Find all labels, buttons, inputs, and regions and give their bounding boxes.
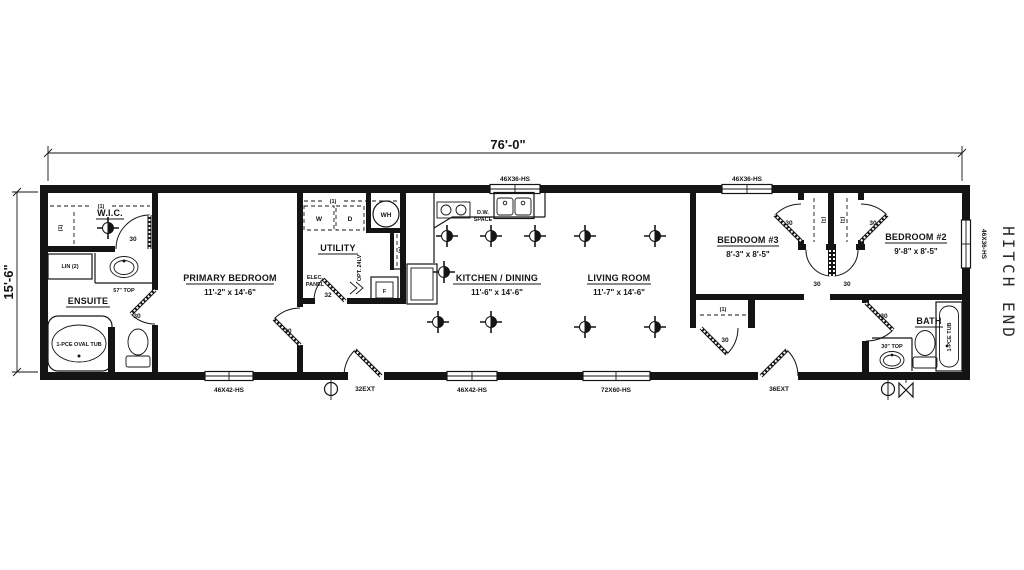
ceiling-light-icon — [574, 316, 596, 338]
shelf-mark: (1) — [720, 307, 727, 313]
primary-bedroom-size: 11'-2" x 14'-6" — [204, 288, 256, 297]
shelf-mark: (1) — [839, 217, 845, 224]
oval-tub-label: 1-PCE OVAL TUB — [56, 342, 101, 348]
living-room: LIVING ROOM 11'-7" x 14'-6" — [587, 273, 651, 297]
dimension-top: 76'-0" — [44, 137, 966, 181]
bedroom3: BEDROOM #3 8'-3" x 8'-5" — [717, 235, 779, 259]
bath-door: 30 — [866, 303, 893, 341]
dw-space-label-1: D.W. — [477, 210, 489, 216]
elec-panel-label-2: PANEL — [306, 282, 325, 288]
furnace-label: F — [383, 289, 387, 295]
ensuite-door: 30 — [131, 290, 155, 324]
hitch-end-label: HITCH END — [999, 226, 1018, 340]
window-bedroom2-right: 46X36-HS — [962, 220, 988, 268]
bedroom3-door: 30 — [775, 204, 801, 241]
svg-text:30: 30 — [284, 328, 292, 335]
window-bedroom3-top: 46X36-HS — [722, 176, 772, 194]
living-room-size: 11'-7" x 14'-6" — [593, 288, 645, 297]
primary-bedroom-door: 30 — [274, 308, 300, 345]
utility-label: UTILITY — [320, 243, 355, 253]
linen-label: LIN (2) — [61, 264, 78, 270]
kitchen-size: 11'-6" x 14'-6" — [471, 288, 523, 297]
shelf-mark: (1) — [820, 217, 826, 224]
bedroom2-label: BEDROOM #2 — [885, 232, 947, 242]
svg-text:30: 30 — [880, 313, 888, 320]
shelf-mark: (1) — [397, 247, 403, 254]
ceiling-light-icon — [644, 316, 666, 338]
wic-door: 30 — [116, 215, 150, 249]
washer-label: W — [316, 216, 323, 223]
ceiling-light-icon — [480, 311, 502, 333]
ceiling-light-icon — [427, 311, 449, 333]
overall-width-dimension: 76'-0" — [490, 137, 525, 152]
bedroom2-door: 30 — [861, 204, 887, 241]
bedroom2: BEDROOM #2 9'-8" x 8'-5" — [885, 232, 947, 256]
svg-text:30: 30 — [785, 220, 793, 227]
svg-text:30: 30 — [133, 313, 141, 320]
bath-label: BATH — [916, 316, 941, 326]
window-label: 72X60-HS — [601, 387, 632, 394]
shelf-mark: (1) — [58, 224, 64, 231]
svg-text:36EXT: 36EXT — [769, 386, 789, 393]
water-heater-label: WH — [381, 212, 392, 219]
bath-sink — [880, 352, 904, 369]
bedroom3-size: 8'-3" x 8'-5" — [726, 250, 770, 259]
ensuite-toilet — [126, 329, 150, 367]
living-room-label: LIVING ROOM — [588, 273, 651, 283]
svg-text:30: 30 — [813, 281, 821, 288]
oval-tub: 1-PCE OVAL TUB — [48, 316, 112, 371]
bedroom3-label: BEDROOM #3 — [717, 235, 779, 245]
tub-label: 1-PCE TUB — [947, 322, 953, 351]
svg-text:32EXT: 32EXT — [355, 386, 375, 393]
dimension-left: 15'-6" — [1, 188, 38, 376]
svg-text:30: 30 — [869, 220, 877, 227]
kitchen-sink — [494, 193, 534, 219]
porch-light-icon — [882, 377, 895, 400]
vanity-label: 57" TOP — [113, 288, 135, 294]
svg-text:30: 30 — [129, 236, 137, 243]
svg-text:30: 30 — [843, 281, 851, 288]
vanity-label: 30" TOP — [881, 344, 903, 350]
ceiling-light-icon — [524, 225, 546, 247]
window-label: 46X36-HS — [980, 229, 987, 260]
ceiling-light-icon — [480, 225, 502, 247]
ceiling-light-icon — [97, 217, 119, 239]
dryer-label: D — [348, 216, 353, 223]
shelf-mark: (1) — [330, 199, 337, 205]
utility-room: (1) W D WH UTILITY ELEC. PANEL OPT. 24LV… — [304, 199, 404, 303]
primary-bedroom: PRIMARY BEDROOM 11'-2" x 14'-6" — [183, 273, 277, 297]
elec-panel-label-1: ELEC. — [307, 275, 324, 281]
ceiling-light-icon — [644, 225, 666, 247]
bath-toilet — [913, 331, 937, 369]
primary-bedroom-label: PRIMARY BEDROOM — [183, 273, 277, 283]
window-label: 46X42-HS — [457, 387, 488, 394]
window-living-bottom: 72X60-HS — [583, 372, 650, 395]
floor-plan-page: 76'-0" 15'-6" HITCH END — [0, 0, 1024, 570]
kitchen-dining: D.W. SPACE KITCHEN / DINING 11'-6" x 14'… — [407, 193, 545, 305]
porch-light-icon — [325, 377, 338, 400]
opt-arrow — [350, 282, 363, 294]
overall-height-dimension: 15'-6" — [1, 264, 16, 299]
ensuite-room: LIN (2) 57" TOP ENSUITE 1-PCE OVAL TUB — [48, 253, 152, 371]
closet-b: (1) — [839, 198, 847, 242]
wic-label: W.I.C. — [97, 208, 123, 218]
bath-tub: 1-PCE TUB — [936, 302, 962, 371]
bedroom2-size: 9'-8" x 8'-5" — [894, 247, 938, 256]
window-kitchen-top: 46X36-HS — [490, 176, 540, 194]
closet-b-door: 30 — [834, 250, 858, 288]
floor-plan-svg: 76'-0" 15'-6" HITCH END — [0, 0, 1024, 570]
ensuite-label: ENSUITE — [68, 296, 108, 306]
opt-lav-label: OPT. 24LV — [357, 254, 363, 281]
water-heater: WH — [373, 201, 399, 227]
range — [437, 202, 470, 218]
ceiling-light-icon — [574, 225, 596, 247]
closet-a: (1) — [814, 198, 826, 242]
ensuite-sink — [110, 257, 138, 278]
dw-space-label-2: SPACE — [474, 217, 493, 223]
svg-text:32: 32 — [324, 292, 332, 299]
kitchen-label: KITCHEN / DINING — [456, 273, 538, 283]
window-label: 46X36-HS — [500, 176, 531, 183]
window-label: 46X42-HS — [214, 387, 245, 394]
ceiling-light-icon — [436, 225, 458, 247]
hall-closet-door: 30 — [701, 328, 738, 354]
window-primary-bottom: 46X42-HS — [205, 372, 253, 395]
svg-text:30: 30 — [721, 337, 729, 344]
window-dining-bottom: 46X42-HS — [447, 372, 497, 395]
refrigerator — [407, 264, 437, 304]
hall-closet: (1) — [700, 307, 748, 315]
window-label: 46X36-HS — [732, 176, 763, 183]
closet-a-door: 30 — [806, 250, 830, 288]
